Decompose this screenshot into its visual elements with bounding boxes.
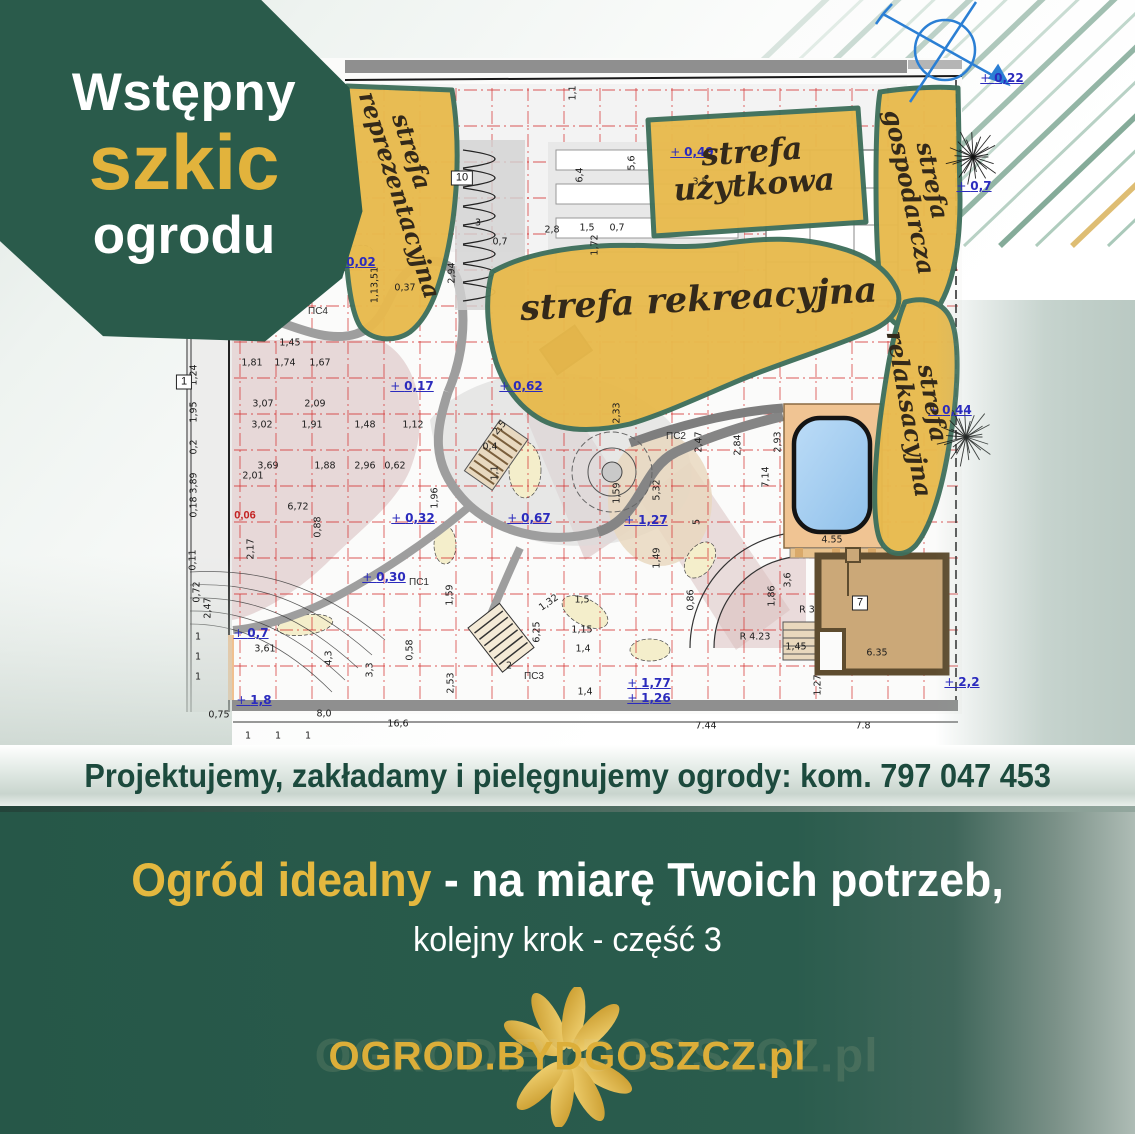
badge-line3: ogrodu <box>0 205 368 266</box>
footer: Ogród idealny - na miarę Twoich potrzeb,… <box>0 812 1135 1134</box>
house-steps <box>783 622 815 660</box>
footer-subline: kolejny krok - część 3 <box>28 921 1106 960</box>
pool <box>794 418 870 532</box>
badge-line2: szkic <box>0 125 368 199</box>
house <box>818 548 946 672</box>
contact-text: Projektujemy, zakładamy i pielęgnujemy o… <box>84 757 1051 795</box>
teal-fade <box>935 300 1135 745</box>
footer-headline: Ogród idealny - na miarę Twoich potrzeb, <box>28 852 1106 907</box>
logo: OGROD.BYDGOSZCZ.pl OGROD.BYDGOSZCZ.pl <box>0 987 1135 1127</box>
badge-line1: Wstępny <box>0 62 368 123</box>
contact-bar: Projektujemy, zakładamy i pielęgnujemy o… <box>0 745 1135 806</box>
headline-gold: Ogród idealny <box>131 853 431 906</box>
zone-uzytkowa <box>648 108 866 236</box>
poster: 1,451,811,741,673,072,093,021,911,481,12… <box>0 0 1135 1134</box>
logo-text: OGROD.BYDGOSZCZ.pl <box>329 1035 807 1080</box>
headline-rest: - na miarę Twoich potrzeb, <box>431 853 1003 906</box>
bottom-left-fade <box>0 555 232 745</box>
plan-area: 1,451,811,741,673,072,093,021,911,481,12… <box>0 0 1135 745</box>
